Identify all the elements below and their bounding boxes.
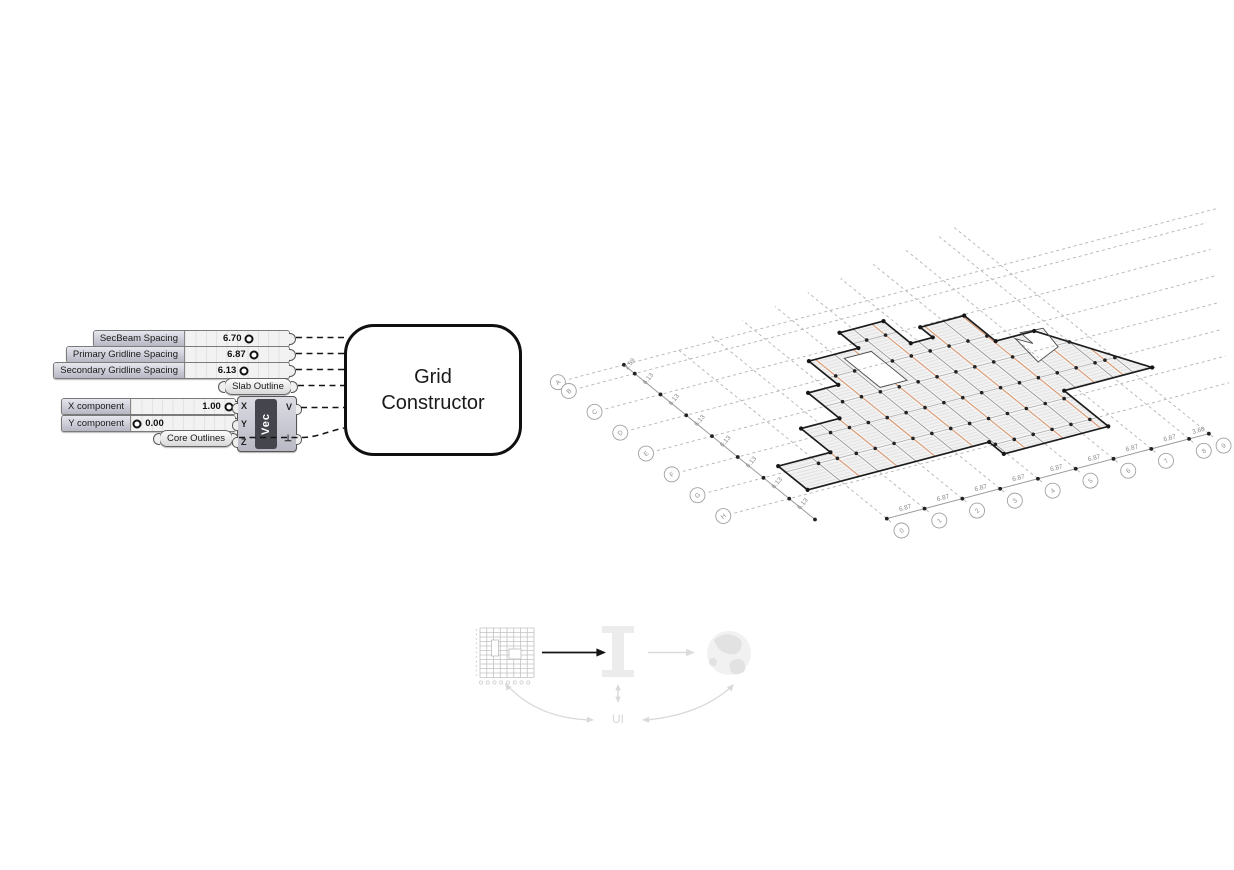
grid-bubble-label: 0 xyxy=(898,527,906,535)
feedback-arrow-left xyxy=(502,681,594,723)
grid-bubble-label: G xyxy=(694,492,702,501)
slider-secbeam-spacing[interactable]: SecBeam Spacing 6.70 xyxy=(93,330,290,347)
secondary-dim-label: 6.13 xyxy=(719,434,733,448)
gridlines-dashed xyxy=(569,208,1229,522)
grid-bubble-label: 5 xyxy=(1087,477,1095,485)
slider-knob[interactable] xyxy=(249,350,258,359)
input-port[interactable] xyxy=(218,381,225,393)
primary-dim-label: 6.87 xyxy=(1163,433,1177,443)
secondary-dim-label: 6.13 xyxy=(770,476,784,490)
grid-constructor-cluster[interactable]: Grid Constructor xyxy=(344,324,522,456)
output-port[interactable] xyxy=(296,434,302,445)
grid-bubble-label: A xyxy=(555,378,563,387)
cluster-label-line1: Grid xyxy=(414,364,452,390)
slab-beams xyxy=(635,258,1201,512)
slider-value: 6.70 xyxy=(223,331,242,346)
vec-inputs: X Y Z xyxy=(241,397,247,451)
input-port[interactable] xyxy=(232,437,238,448)
slider-track[interactable]: 6.70 xyxy=(185,331,289,346)
grid-bubble-label: 9 xyxy=(1220,442,1228,450)
slider-knob[interactable] xyxy=(240,366,249,375)
output-port[interactable] xyxy=(289,365,296,377)
secondary-dim-label: 2.59 xyxy=(623,357,637,371)
feedback-arrow-right xyxy=(642,682,736,723)
slider-knob[interactable] xyxy=(133,419,142,428)
slider-label: Primary Gridline Spacing xyxy=(67,347,185,362)
vec-name: Vec xyxy=(260,413,272,435)
arrow-right-faded-icon xyxy=(648,649,695,656)
primary-dim-label: 6.87 xyxy=(974,483,988,493)
grid-bubble-label: 7 xyxy=(1163,457,1171,465)
slider-value: 0.00 xyxy=(145,416,164,431)
axon-drawing: 2.596.136.136.136.136.136.136.136.876.87… xyxy=(550,208,1231,538)
grid-bubble-label: 1 xyxy=(936,517,944,525)
vec-output-unit[interactable]: ⊥ xyxy=(284,433,292,444)
output-port[interactable] xyxy=(289,349,296,361)
vec-input-x[interactable]: X xyxy=(241,401,247,411)
vec-core: Vec xyxy=(255,399,277,449)
primary-dim-label: 6.87 xyxy=(936,493,950,503)
grid-bubbles: ABCDEFGH0123456789 xyxy=(550,375,1231,538)
slider-label: Secondary Gridline Spacing xyxy=(54,363,185,378)
slider-label: SecBeam Spacing xyxy=(94,331,185,346)
grid-bubble-label: E xyxy=(643,450,651,459)
slider-label: X component xyxy=(62,399,131,414)
cluster-label-line2: Constructor xyxy=(381,390,484,416)
input-port[interactable] xyxy=(153,433,160,445)
secondary-dim-label: 6.13 xyxy=(693,413,707,427)
output-port[interactable] xyxy=(291,381,298,393)
vec-component[interactable]: X Y Z Vec V ⊥ xyxy=(237,396,297,452)
dimension-lines: 2.596.136.136.136.136.136.136.136.876.87… xyxy=(622,357,1211,522)
slider-track[interactable]: 6.13 xyxy=(185,363,289,378)
grid-bubble-label: 6 xyxy=(1125,467,1133,475)
vec-input-y[interactable]: Y xyxy=(241,419,247,429)
slider-value: 1.00 xyxy=(202,399,221,414)
secondary-dim-label: 6.13 xyxy=(796,497,810,511)
grid-bubble-label: 2 xyxy=(974,507,982,515)
grid-bubble-label: 3 xyxy=(1012,497,1020,505)
ui-label: UI xyxy=(612,712,624,726)
slider-value: 6.87 xyxy=(227,347,246,362)
arrow-right-icon xyxy=(542,648,606,656)
output-port[interactable] xyxy=(296,404,302,415)
primary-dim-label: 6.87 xyxy=(1049,463,1063,473)
slider-value: 6.13 xyxy=(218,363,237,378)
primary-dim-label: 6.87 xyxy=(1087,453,1101,463)
param-label: Slab Outline xyxy=(232,381,284,392)
slab-outline xyxy=(778,316,1152,490)
input-port[interactable] xyxy=(232,403,238,414)
globe-icon xyxy=(707,631,751,675)
grid-bubble-label: H xyxy=(720,512,728,521)
grid-bubble-label: 8 xyxy=(1201,447,1209,455)
secondary-dim-label: 6.13 xyxy=(667,393,681,407)
double-arrow-vertical-icon xyxy=(615,684,620,703)
primary-dim-label: 3.60 xyxy=(1192,426,1206,436)
core-opening xyxy=(1015,328,1058,362)
grid-plan-icon xyxy=(476,628,534,684)
primary-dim-label: 6.87 xyxy=(898,503,912,513)
secondary-dim-label: 6.13 xyxy=(745,455,759,469)
slider-x-component[interactable]: X component 1.00 xyxy=(61,398,236,415)
param-label: Core Outlines xyxy=(167,433,225,444)
slab-fill xyxy=(778,316,1152,490)
vec-outputs: V ⊥ xyxy=(284,397,292,451)
slider-track[interactable]: 0.00 xyxy=(131,416,235,431)
param-core-outlines[interactable]: Core Outlines xyxy=(159,430,233,447)
workflow-diagram: UI xyxy=(476,626,751,726)
slider-track[interactable]: 1.00 xyxy=(131,399,235,414)
core-opening xyxy=(844,351,907,387)
slider-track[interactable]: 6.87 xyxy=(185,347,289,362)
param-slab-outline[interactable]: Slab Outline xyxy=(224,378,292,395)
secondary-dim-label: 6.13 xyxy=(642,372,656,386)
grid-bubble-label: C xyxy=(591,408,599,417)
vec-output-v[interactable]: V xyxy=(284,402,292,412)
primary-dim-label: 6.87 xyxy=(1012,473,1026,483)
grid-bubble-label: 4 xyxy=(1050,487,1058,495)
slider-primary-gridline-spacing[interactable]: Primary Gridline Spacing 6.87 xyxy=(66,346,290,363)
vec-input-z[interactable]: Z xyxy=(241,437,247,447)
ibeam-icon xyxy=(602,626,634,677)
input-port[interactable] xyxy=(232,420,238,431)
slab-hatch xyxy=(778,316,1152,490)
slider-knob[interactable] xyxy=(245,334,254,343)
grid-bubble-label: F xyxy=(669,471,677,479)
grid-bubble-label: D xyxy=(617,429,625,438)
primary-dim-label: 6.87 xyxy=(1125,443,1139,453)
slider-label: Y component xyxy=(62,416,131,431)
output-port[interactable] xyxy=(289,333,296,345)
slider-secondary-gridline-spacing[interactable]: Secondary Gridline Spacing 6.13 xyxy=(53,362,290,379)
node-dots xyxy=(776,314,1154,492)
grid-bubble-label: B xyxy=(565,388,573,396)
